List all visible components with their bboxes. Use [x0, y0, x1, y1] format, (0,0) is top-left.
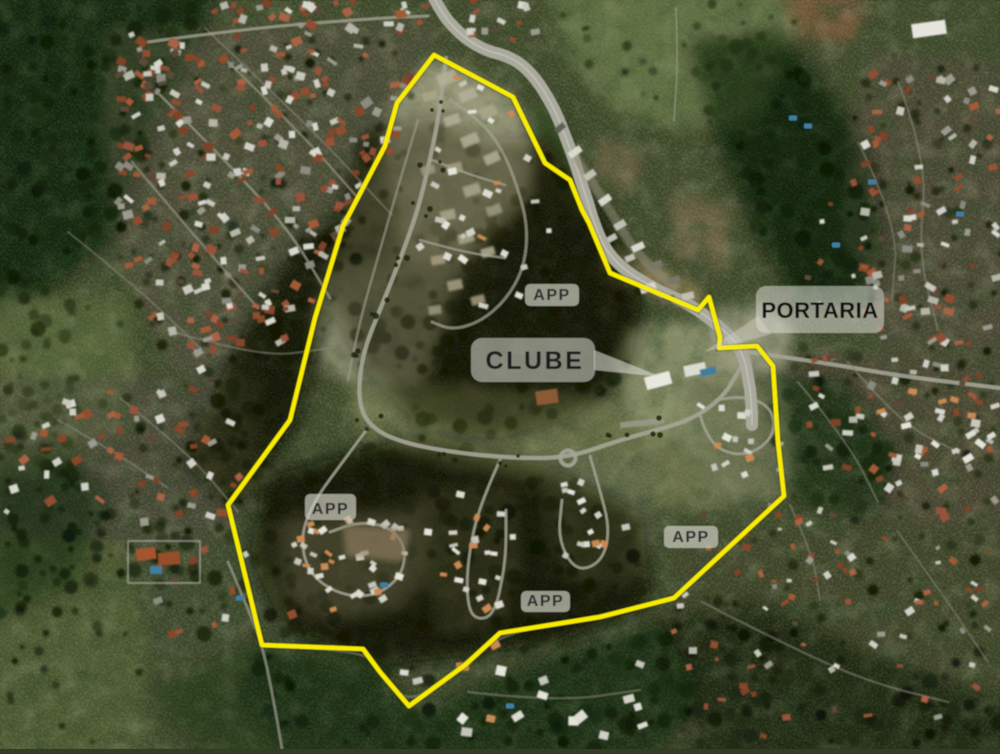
svg-text:APP: APP: [672, 529, 709, 546]
svg-text:APP: APP: [533, 287, 570, 304]
svg-text:APP: APP: [527, 593, 564, 610]
svg-text:APP: APP: [312, 501, 349, 518]
svg-text:PORTARIA: PORTARIA: [761, 298, 878, 323]
svg-text:CLUBE: CLUBE: [485, 347, 584, 375]
